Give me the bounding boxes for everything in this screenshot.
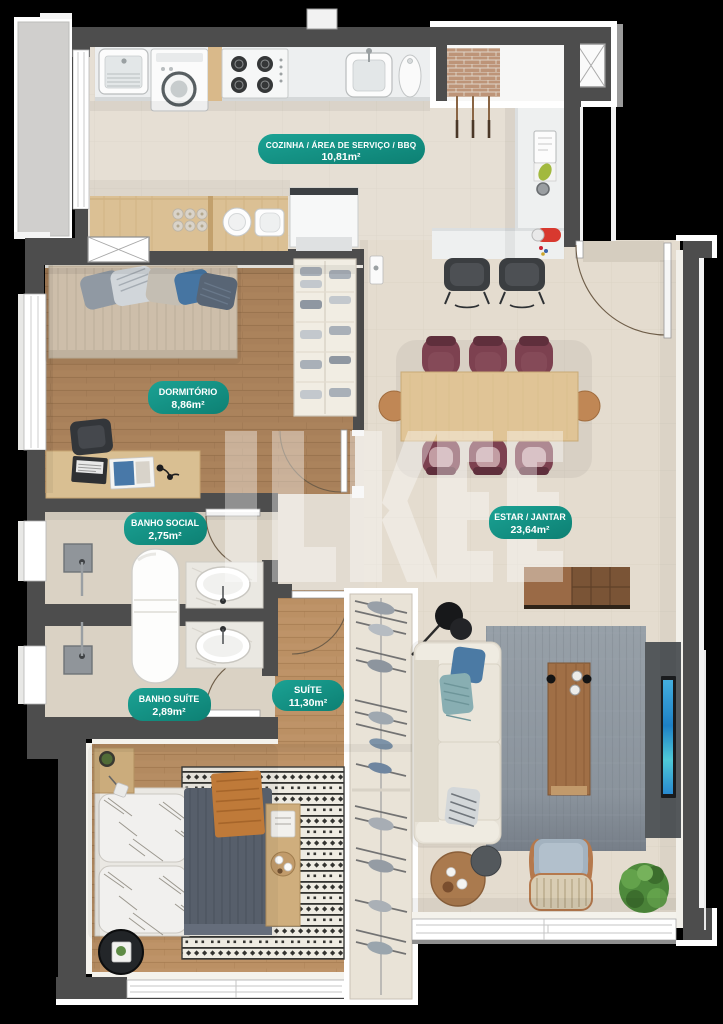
svg-text:COZINHA / ÁREA DE SERVIÇO / BB: COZINHA / ÁREA DE SERVIÇO / BBQ bbox=[266, 140, 417, 150]
svg-text:10,81m²: 10,81m² bbox=[321, 151, 361, 163]
svg-text:ESTAR / JANTAR: ESTAR / JANTAR bbox=[494, 512, 566, 522]
svg-text:BANHO SUÍTE: BANHO SUÍTE bbox=[139, 694, 200, 704]
svg-text:23,64m²: 23,64m² bbox=[510, 524, 550, 536]
svg-text:BANHO SOCIAL: BANHO SOCIAL bbox=[131, 518, 200, 528]
svg-text:11,30m²: 11,30m² bbox=[289, 697, 328, 709]
svg-text:2,75m²: 2,75m² bbox=[148, 530, 182, 542]
svg-text:DORMITÓRIO: DORMITÓRIO bbox=[159, 386, 218, 397]
svg-text:SUÍTE: SUÍTE bbox=[294, 685, 322, 696]
svg-text:8,86m²: 8,86m² bbox=[171, 399, 205, 411]
svg-text:2,89m²: 2,89m² bbox=[152, 706, 186, 718]
